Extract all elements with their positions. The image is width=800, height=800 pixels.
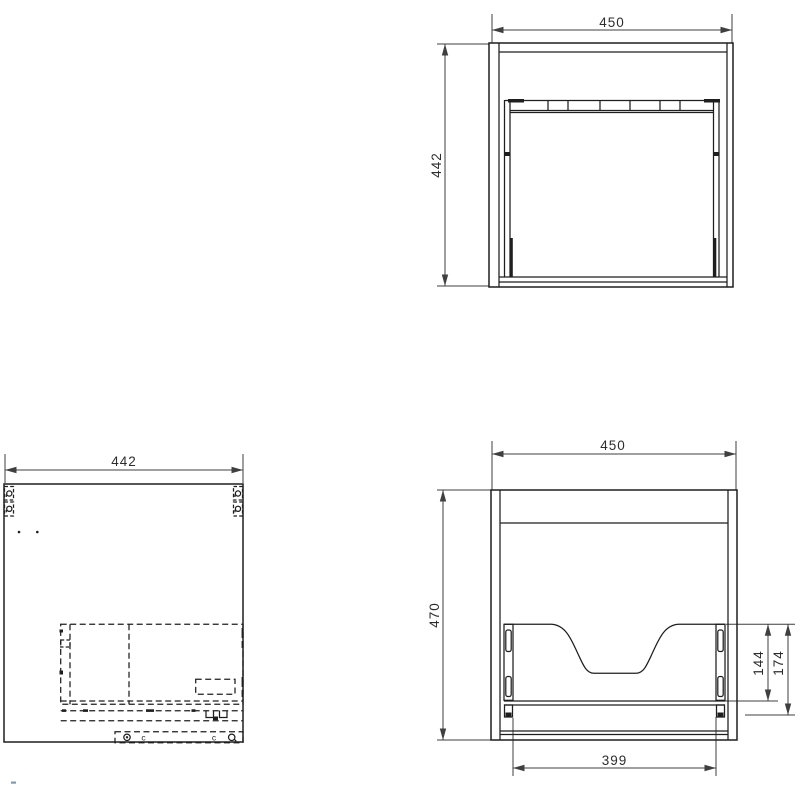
carcass-front-view: 450 442 (429, 14, 733, 287)
carcass-bottom-panel (499, 277, 727, 282)
dim-cabinet-height (437, 490, 491, 740)
hidden-lock-block (196, 679, 235, 694)
plan-geometry: c c (4, 484, 243, 743)
dim-label-panel-width: 442 (111, 454, 137, 469)
dim-label-cabinet-height: 470 (427, 602, 442, 628)
drawer-handle-cutout (504, 624, 725, 673)
pilot-hole-1 (18, 531, 21, 534)
drawer-box-side-walls (505, 100, 720, 277)
dowel-hole-right (229, 734, 235, 740)
carcass-dimensions: 450 442 (429, 14, 732, 286)
slide-screw-left (505, 152, 511, 156)
dim-label-cabinet-width: 450 (600, 438, 626, 453)
hidden-drawer-outline (61, 624, 243, 742)
dim-label-runner-height: 144 (751, 650, 766, 676)
dim-label-runner-bracket-height: 174 (771, 650, 786, 676)
rail-corner-bracket-left (508, 99, 524, 103)
clip-label-left: c (141, 733, 146, 743)
dim-label-carcass-width: 450 (599, 15, 625, 30)
plan-solid-marks (18, 531, 218, 739)
drawer-runner-right (716, 624, 725, 700)
pilot-hole-2 (36, 531, 39, 534)
hidden-bracket-left (61, 640, 70, 647)
cabinet-bottom-panel (500, 731, 728, 735)
cabinet-side-panels (500, 490, 728, 740)
plan-dimensions: 442 (5, 454, 243, 483)
carcass-outline (489, 43, 733, 287)
drawer-box-top-rail (505, 101, 719, 113)
hidden-front-rail (115, 732, 243, 743)
carcass-side-panels (499, 43, 727, 287)
dim-label-drawer-width: 399 (602, 753, 628, 768)
rail-corner-bracket-right (704, 99, 720, 103)
panel-plan-view: 442 (4, 454, 243, 784)
cabinet-outline (491, 490, 737, 740)
carcass-solid-marks (505, 99, 721, 277)
clip-label-right: c (212, 733, 217, 743)
drawer-bottom-stretcher (504, 701, 725, 705)
drawer-view-geometry (491, 490, 737, 740)
slide-bar-right (714, 238, 717, 277)
corner-fitting-cams (6, 491, 240, 512)
rail-segment-dividers (548, 101, 680, 111)
drawer-front-view: 450 470 144 174 399 (427, 438, 795, 776)
dim-label-carcass-height: 442 (429, 152, 444, 178)
slide-screw-right (714, 152, 720, 156)
stray-mark (11, 782, 16, 784)
technical-drawing-page: 450 442 (0, 0, 800, 800)
dim-carcass-height (437, 44, 489, 286)
drawer-dimensions: 450 470 144 174 399 (427, 438, 795, 776)
drawer-runner-left (504, 624, 513, 700)
drawer-solid-marks (506, 713, 724, 718)
cabinet-technical-drawing: 450 442 (0, 0, 800, 800)
slide-bar-left (510, 238, 513, 277)
panel-outline (4, 484, 243, 742)
carcass-geometry (489, 43, 733, 287)
corner-fittings (5, 487, 243, 517)
